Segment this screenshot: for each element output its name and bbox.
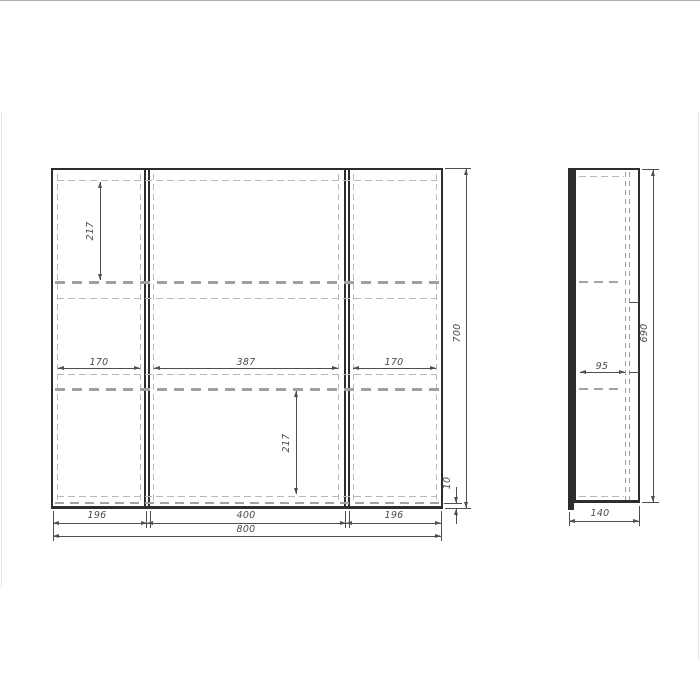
- dim-label-95: 95: [587, 361, 617, 373]
- arrow-left-icon: [346, 521, 352, 525]
- dim-label-700: 700: [452, 318, 464, 348]
- ext-line: [349, 511, 350, 528]
- arrow-right-icon: [134, 366, 140, 370]
- arrow-up-icon: [651, 170, 655, 176]
- arrow-up-icon: [464, 169, 468, 175]
- arrow-left-icon: [353, 366, 359, 370]
- ext-line: [150, 511, 151, 528]
- arrow-down-icon: [98, 274, 102, 280]
- dim-label-196-left: 196: [82, 510, 112, 522]
- dim-label-10: 10: [442, 468, 454, 498]
- dim-label-800: 800: [231, 524, 261, 536]
- dim-line-140: [569, 521, 639, 522]
- front-view-outline: [51, 168, 443, 509]
- hidden-edge-vertical: [338, 174, 339, 502]
- arrow-left-icon: [569, 519, 575, 523]
- arrow-left-icon: [58, 366, 64, 370]
- dim-label-400: 400: [231, 510, 261, 522]
- arrow-down-icon: [454, 497, 458, 503]
- dim-line-95-tail: [629, 372, 639, 373]
- shelf-edge-side-lower: [579, 388, 624, 390]
- shelf-lower-topside: [57, 374, 437, 375]
- dim-line-217-bottom: [296, 391, 297, 494]
- dim-label-140: 140: [585, 508, 615, 520]
- hidden-back-edge: [629, 172, 630, 500]
- dim-line-700: [466, 169, 467, 508]
- carcass-bottom-edge: [55, 502, 439, 504]
- dim-label-387: 387: [231, 357, 261, 369]
- side-view-carcass-outline: [574, 168, 640, 503]
- arrow-right-icon: [435, 521, 441, 525]
- shelf-upper-underside: [57, 298, 437, 299]
- hidden-top-edge-side: [579, 176, 624, 177]
- hidden-edge-vertical: [140, 174, 141, 502]
- arrow-right-icon: [435, 534, 441, 538]
- shelf-edge-side-upper: [579, 281, 624, 283]
- dim-label-170-left: 170: [84, 357, 114, 369]
- arrow-down-icon: [464, 502, 468, 508]
- ext-line: [441, 511, 442, 541]
- arrow-down-icon: [294, 488, 298, 494]
- arrow-left-icon: [53, 521, 59, 525]
- front-divider-right: [344, 170, 350, 507]
- arrow-left-icon: [147, 521, 153, 525]
- frame-left-border: [1, 112, 2, 588]
- arrow-left-icon: [154, 366, 160, 370]
- ext-line-bottom: [445, 508, 471, 509]
- dim-label-217-bottom: 217: [281, 428, 293, 458]
- dim-line-800: [53, 536, 441, 537]
- drawing-canvas: 217 170 387 170 217 700 10 196 400 19: [0, 0, 700, 700]
- arrow-left-icon: [53, 534, 59, 538]
- arrow-up-icon: [98, 182, 102, 188]
- ext-line: [639, 506, 640, 526]
- arrow-up-icon: [454, 509, 458, 515]
- hidden-bottom-edge-side: [579, 496, 624, 497]
- dim-line-196-right: [346, 523, 441, 524]
- hidden-edge-vertical: [57, 174, 58, 502]
- hidden-edge-vertical: [436, 174, 437, 502]
- hidden-bottom-edge: [57, 496, 437, 497]
- frame-top-border: [0, 0, 700, 1]
- hidden-top-edge: [57, 180, 437, 181]
- arrow-right-icon: [633, 519, 639, 523]
- dim-label-690: 690: [639, 318, 651, 348]
- ext-line: [345, 511, 346, 528]
- hidden-edge-vertical: [153, 174, 154, 502]
- arrow-down-icon: [651, 496, 655, 502]
- arrow-up-icon: [294, 391, 298, 397]
- front-divider-left: [144, 170, 150, 507]
- ext-line-side-bottom: [642, 502, 659, 503]
- dim-label-170-right: 170: [379, 357, 409, 369]
- dim-line-690: [653, 170, 654, 502]
- arrow-right-icon: [619, 370, 625, 374]
- frame-right-border: [698, 112, 699, 660]
- dim-line-196-left: [53, 523, 147, 524]
- dim-line-217-top: [100, 182, 101, 280]
- hidden-edge-vertical: [353, 174, 354, 502]
- arrow-right-icon: [430, 366, 436, 370]
- dim-label-196-right: 196: [379, 510, 409, 522]
- hidden-back-edge: [625, 172, 626, 500]
- ext-line: [146, 511, 147, 528]
- ext-line-carcass-bottom: [444, 503, 462, 504]
- arrow-left-icon: [580, 370, 586, 374]
- shelf-lower-edge: [55, 388, 439, 391]
- shelf-upper-edge: [55, 281, 439, 284]
- shelf-support-tick: [629, 302, 639, 303]
- arrow-right-icon: [332, 366, 338, 370]
- dim-label-217-top: 217: [85, 216, 97, 246]
